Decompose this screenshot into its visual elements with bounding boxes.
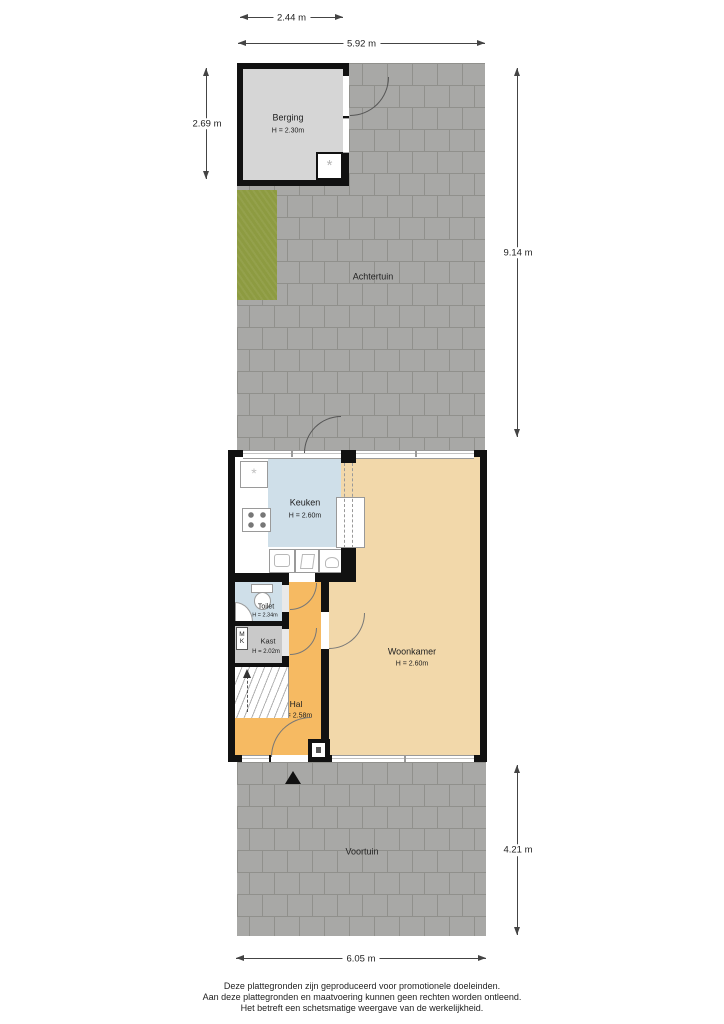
footer-line-3: Het betreft een schetsmatige weergave va…: [0, 1003, 724, 1014]
footer-disclaimer: Deze plattegronden zijn geproduceerd voo…: [0, 981, 724, 1014]
berging-door-opening: [343, 76, 349, 116]
window-mullion: [291, 450, 293, 457]
stairs-up-arrow-icon: [243, 669, 251, 678]
dimension-berging-width: 2.44 m: [240, 17, 343, 18]
unit-glyph: *: [251, 465, 256, 481]
footer-line-2: Aan deze plattegronden en maatvoering ku…: [0, 992, 724, 1003]
window-mullion: [404, 755, 406, 762]
meterkast-box: M K: [236, 627, 248, 650]
unit-glyph: *: [327, 157, 333, 174]
stairs-walkline: [247, 676, 248, 712]
dimension-label: 9.14 m: [499, 247, 536, 259]
berging-height-label: H = 2.30m: [272, 128, 305, 135]
dimension-label: 2.69 m: [188, 118, 225, 130]
floorplan-canvas: 2.44 m 5.92 m 2.69 m 9.14 m 4.21 m 6.05 …: [0, 0, 724, 1024]
voortuin-label: Voortuin: [345, 848, 378, 857]
meterkast-letter-k: K: [237, 639, 247, 646]
dimension-achtertuin-depth: 9.14 m: [517, 68, 518, 437]
achtertuin-label: Achtertuin: [353, 273, 394, 282]
woonkamer-label: Woonkamer: [388, 648, 436, 657]
berging-window: [343, 118, 349, 153]
stove-icon: [242, 508, 271, 532]
toilet-label: Toilet: [258, 604, 274, 611]
window-mullion: [415, 450, 417, 457]
partition-stub-top: [341, 450, 356, 463]
woonkamer-height-label: H = 2.60m: [396, 661, 429, 668]
fixture-icon: [312, 743, 325, 757]
hal-woonkamer-door-opening: [321, 612, 329, 649]
hal-label: Hal: [290, 700, 303, 709]
dimension-berging-depth: 2.69 m: [206, 68, 207, 179]
dimension-label: 6.05 m: [342, 953, 379, 965]
cv-unit-icon: *: [316, 152, 343, 180]
dimension-label: 2.44 m: [273, 12, 310, 24]
hal-woonkamer-wall: [321, 582, 329, 755]
kitchen-door-opening: [289, 573, 315, 582]
entrance-arrow-icon: [285, 771, 301, 784]
toilet-door-opening: [282, 585, 289, 612]
dimension-plot-width-top: 5.92 m: [238, 43, 485, 44]
basin-icon: [319, 549, 343, 573]
dimension-label: 5.92 m: [343, 38, 380, 50]
footer-line-1: Deze plattegronden zijn geproduceerd voo…: [0, 981, 724, 992]
dimension-voortuin-depth: 4.21 m: [517, 765, 518, 935]
dishwasher-icon: [295, 549, 319, 573]
grass-strip: [237, 190, 277, 300]
sink-icon: [269, 549, 295, 573]
toilet-height-label: H = 2.34m: [252, 613, 278, 619]
berging-label: Berging: [272, 114, 303, 123]
fridge-icon: *: [240, 461, 268, 488]
keuken-height-label: H = 2.60m: [289, 513, 322, 520]
dimension-label: 4.21 m: [499, 844, 536, 856]
kast-door-opening: [282, 629, 289, 656]
keuken-label: Keuken: [290, 499, 321, 508]
kast-label: Kast: [260, 637, 275, 645]
dimension-plot-width-bottom: 6.05 m: [236, 958, 486, 959]
kast-height-label: H = 2.02m: [252, 649, 280, 655]
sliding-door-dashed: [344, 463, 353, 548]
